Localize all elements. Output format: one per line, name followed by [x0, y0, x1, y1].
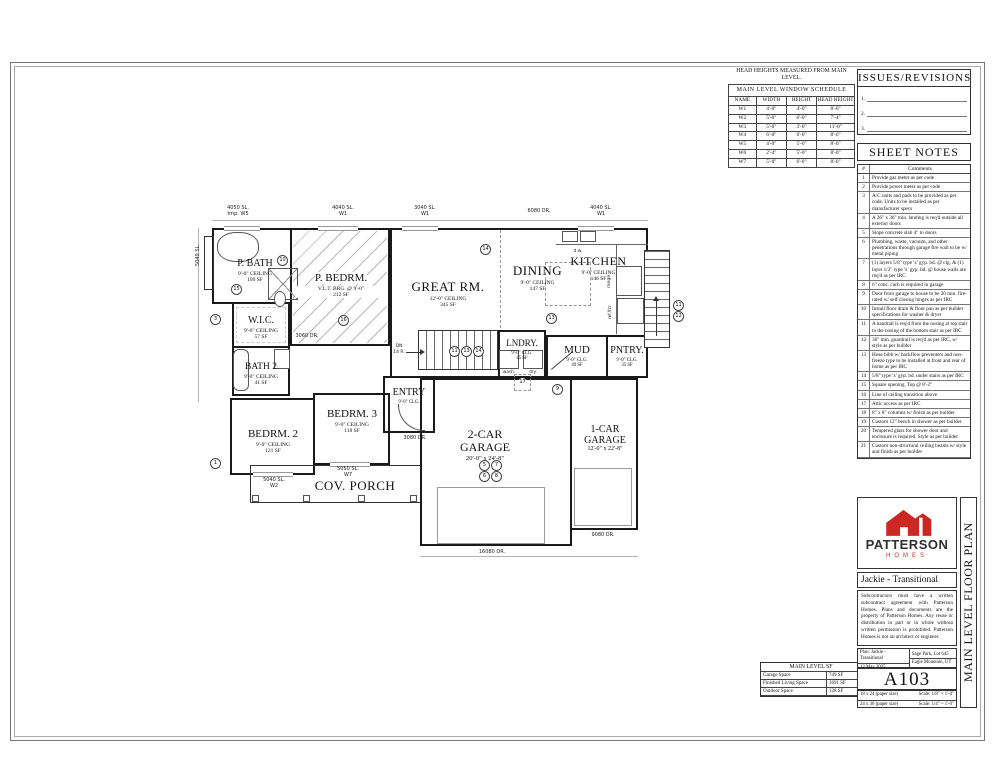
- sf-value: 128 SF: [827, 688, 861, 695]
- room-sf: 109 SF: [215, 277, 295, 283]
- plan-title: Jackie - Transitional: [858, 573, 956, 587]
- room-name: 1-CAR: [572, 424, 638, 435]
- wall-vanity-bump: [204, 236, 214, 290]
- cell-width: 5'-0": [756, 158, 786, 167]
- disclaimer-text: Subcontractors must have a written subco…: [858, 591, 956, 642]
- room-label-pntry: PNTRY. 9'-0" CLG. 35 SF: [604, 340, 650, 369]
- cell-name: W2: [729, 114, 757, 123]
- cell-head-height: 8'-0": [817, 105, 855, 114]
- note-number: 1: [858, 174, 870, 182]
- note-row: 15 Square opening. Top @ 8'-2": [858, 381, 970, 390]
- tag-size: 3060 DR.: [295, 333, 318, 339]
- kitchen-sink-icon: [580, 231, 596, 242]
- tag-id: tmp. W5: [227, 211, 248, 217]
- stair-dn-label: DN: [392, 344, 406, 349]
- sf-label: Garage Space: [761, 672, 827, 679]
- note-number: 15: [858, 381, 870, 389]
- note-number: 2: [858, 183, 870, 191]
- scale-box: 18 x 24 (paper size) Scale: 1/8" = 1'-0"…: [857, 690, 957, 708]
- dryer-label: dry.: [523, 370, 543, 375]
- plan-info-right: Sage Park, Lot 645 Eagle Mountain, UT: [910, 649, 956, 667]
- cell-height: 3'-0": [786, 123, 816, 132]
- note-text: 8" x 8" columns w/ finish as per builder: [870, 409, 970, 417]
- sheet-notes-table: # Comments 1 Provide gas meter as per co…: [857, 164, 971, 459]
- note-text: 6" conc. curb is required in garage: [870, 281, 970, 289]
- issue-number: 1.: [861, 96, 865, 102]
- door-tag: 3080 DR.: [400, 436, 430, 442]
- issues-row: 2.: [858, 102, 970, 117]
- note-number: 3: [858, 192, 870, 212]
- room-name: PNTRY.: [610, 345, 643, 356]
- note-ref: 13: [461, 346, 472, 357]
- note-number: 12: [858, 336, 870, 350]
- issues-title: ISSUES/REVISIONS: [858, 70, 970, 87]
- schedule-caption: HEAD HEIGHTS MEASURED FROM MAIN LEVEL.: [728, 68, 855, 82]
- brand-sub: HOMES: [886, 553, 928, 559]
- window-tag: 5040 SL.: [196, 238, 202, 272]
- note-text: Slope concrete slab 4" to doors: [870, 229, 970, 237]
- cell-width: 5'-0": [756, 123, 786, 132]
- room-name: P. BATH: [237, 258, 273, 269]
- stair-dn-count: 14 R.: [390, 350, 408, 355]
- note-text: Install floor drain & floor pan as per b…: [870, 305, 970, 319]
- plan-label: Plan: Jackie - Transitional: [858, 649, 909, 664]
- room-label-bath2: BATH 2 9'-0" CEILING 41 SF: [232, 356, 290, 386]
- col-height: HEIGHT: [786, 97, 816, 106]
- issue-line: [867, 116, 967, 117]
- sf-row: Finished Living Space 1691 SF: [761, 680, 861, 688]
- room-sf: 147 SF: [495, 286, 580, 292]
- window-schedule-table: MAIN LEVEL WINDOW SCHEDULE NAME WIDTH HE…: [728, 84, 855, 167]
- fridge-icon: [617, 298, 644, 324]
- sf-label: Finished Living Space: [761, 680, 827, 687]
- schedule-row: W7 5'-0" 6'-0" 8'-0": [729, 158, 855, 167]
- window-opening: [402, 226, 438, 231]
- room-name2: GARAGE: [430, 441, 540, 454]
- room-name2: GARAGE: [572, 435, 638, 446]
- room-name: GREAT RM.: [412, 279, 485, 294]
- drawing-sheet: P. BATH 9'-0" CEILING 109 SF P. BEDRM. V…: [0, 0, 994, 768]
- notes-col-comments: Comments: [870, 165, 970, 173]
- note-number: 4: [858, 214, 870, 228]
- room-sf: 212 SF: [295, 292, 387, 298]
- window-tag: 4040 SL. W1: [586, 206, 616, 218]
- sf-row: Garage Space 749 SF: [761, 672, 861, 680]
- sf-value: 749 SF: [827, 672, 861, 679]
- note-ref: 1: [210, 458, 221, 469]
- note-number: 13: [858, 351, 870, 371]
- room-sf: 41 SF: [232, 380, 290, 386]
- patterson-homes-logo-icon: [881, 507, 933, 537]
- note-ref: 14: [480, 244, 491, 255]
- col-head-height: HEAD HEIGHT: [817, 97, 855, 106]
- room-name: COV. PORCH: [315, 478, 396, 493]
- cell-width: 2'-4": [756, 149, 786, 158]
- dimension-line-bottom: [420, 556, 638, 557]
- counter-line: [556, 244, 648, 245]
- room-label-pbedrm: P. BEDRM. V.L.T. BRG. @ 9'-0" 212 SF: [295, 268, 387, 298]
- issue-number: 3.: [861, 126, 865, 132]
- schedule-row: W4 6'-0" 6'-0" 8'-0": [729, 132, 855, 141]
- note-text: Attic access as per IRC: [870, 400, 970, 408]
- cell-height: 5'-0": [786, 149, 816, 158]
- window-tag: 4050 SL. tmp. W5: [222, 206, 254, 218]
- room-label-bedrm3: BEDRM. 3 9'-0" CEILING 118 SF: [315, 404, 389, 434]
- note-number: 14: [858, 372, 870, 380]
- dn-arrow-icon: [420, 349, 425, 355]
- note-number: 6: [858, 238, 870, 258]
- paper-size-2: 24 x 36 (paper size): [858, 701, 917, 710]
- room-label-garage1: 1-CAR GARAGE 12'-0" x 22'-8": [572, 424, 638, 453]
- schedule-row: W1 4'-0" 4'-0" 8'-0": [729, 105, 855, 114]
- sf-table-title: MAIN LEVEL SF: [761, 663, 861, 672]
- note-row: 1 Provide gas meter as per code: [858, 174, 970, 183]
- cell-height: 6'-0": [786, 114, 816, 123]
- schedule-body: W1 4'-0" 4'-0" 8'-0" W2 5'-0" 6'-0" 7'-4…: [729, 105, 855, 167]
- cell-name: W6: [729, 149, 757, 158]
- note-number: 9: [858, 290, 870, 304]
- cell-height: 4'-0": [786, 105, 816, 114]
- room-name: BEDRM. 2: [248, 428, 298, 440]
- note-ref: 13: [546, 313, 557, 324]
- schedule-row: W5 4'-0" 5'-0" 8'-0": [729, 141, 855, 150]
- room-sf: 121 SF: [232, 448, 314, 454]
- dn-arrow-line: [406, 352, 420, 353]
- note-number: 20: [858, 427, 870, 441]
- issues-rows: 1. 2. 3.: [858, 87, 970, 132]
- porch-column: [252, 495, 259, 502]
- porch-column: [410, 495, 417, 502]
- fridge-label: ref./fzr.: [608, 300, 613, 324]
- note-ref: 8: [491, 471, 502, 482]
- note-row: 2 Provide power meter as per code: [858, 183, 970, 192]
- schedule-header-row: NAME WIDTH HEIGHT HEAD HEIGHT: [729, 97, 855, 106]
- note-text: (1) layers 5/8" type 'x' gyp. bd. @ clg.…: [870, 259, 970, 279]
- room-sf: 118 SF: [315, 428, 389, 434]
- room-name: MUD: [564, 344, 590, 356]
- schedule-row: W2 5'-0" 6'-0" 7'-4": [729, 114, 855, 123]
- note-number: 18: [858, 409, 870, 417]
- washer-label: wash.: [499, 370, 519, 375]
- room-name: BATH 2: [245, 362, 277, 372]
- note-number: 7: [858, 259, 870, 279]
- note-number: 17: [858, 400, 870, 408]
- cell-head-height: 7'-4": [817, 114, 855, 123]
- note-ref: 15: [231, 284, 242, 295]
- room-name: 2-CAR: [430, 428, 540, 441]
- note-text: A handrail is req'd from the nosing at t…: [870, 320, 970, 334]
- issue-line: [867, 131, 967, 132]
- note-ref: 12: [673, 311, 684, 322]
- note-ref: 11: [449, 346, 460, 357]
- note-row: 11 A handrail is req'd from the nosing a…: [858, 320, 970, 335]
- room-label-entry: ENTRY 9'-0" CLG.: [384, 382, 434, 405]
- cell-head-height: 11'-0": [817, 123, 855, 132]
- cell-name: W7: [729, 158, 757, 167]
- issues-revisions-box: ISSUES/REVISIONS 1. 2. 3.: [857, 69, 971, 135]
- note-row: 20 Tempered glass for shower door and en…: [858, 427, 970, 442]
- sf-table-body: Garage Space 749 SF Finished Living Spac…: [761, 672, 861, 696]
- room-label-garage2: 2-CAR GARAGE 20'-0" x 24'-8": [430, 428, 540, 462]
- note-text: 5/8" type 'x' gyp. bd. under stairs as p…: [870, 372, 970, 380]
- note-number: 5: [858, 229, 870, 237]
- sheet-number-box: A103: [857, 668, 957, 690]
- note-text: Door from garage to house to be 20 min. …: [870, 290, 970, 304]
- room-label-bedrm2: BEDRM. 2 9'-0" CEILING 121 SF: [232, 424, 314, 454]
- window-tag: 3040 SL. W1: [410, 206, 440, 218]
- tag-id: W7: [344, 472, 352, 478]
- brand-name: PATTERSON: [866, 537, 949, 552]
- note-text: Provide power meter as per code: [870, 183, 970, 191]
- paper-size-1: 18 x 24 (paper size): [858, 691, 917, 700]
- plan-title-box: Jackie - Transitional: [857, 572, 957, 588]
- note-row: 7 (1) layers 5/8" type 'x' gyp. bd. @ cl…: [858, 259, 970, 280]
- window-schedule: HEAD HEIGHTS MEASURED FROM MAIN LEVEL. M…: [728, 68, 855, 168]
- tag-id: W1: [339, 211, 347, 217]
- range-label: range: [607, 270, 612, 292]
- garage-door-tag: 16080 DR.: [474, 550, 510, 556]
- disclaimer-box: Subcontractors must have a written subco…: [857, 590, 957, 646]
- room-label-kitchen: KITCHEN 9'-0" CEILING 146 SF: [556, 252, 641, 282]
- room-sf: 146 SF: [556, 276, 641, 282]
- room-dim: 12'-0" x 22'-8": [572, 446, 638, 453]
- note-ref: 17: [518, 378, 527, 387]
- note-ref: 10: [277, 255, 288, 266]
- cell-name: W5: [729, 141, 757, 150]
- sheet-notes-title-box: SHEET NOTES: [857, 143, 971, 161]
- window-opening: [224, 226, 260, 231]
- note-ref: 6: [479, 471, 490, 482]
- room-name: LNDRY.: [506, 338, 538, 348]
- notes-body: 1 Provide gas meter as per code 2 Provid…: [858, 174, 970, 458]
- plan-info-grid: Plan: Jackie - Transitional 12 May 2025 …: [857, 648, 957, 668]
- scale-row-2: 24 x 36 (paper size) Scale: 1/4" = 1'-0": [858, 701, 956, 710]
- room-sf: 35 SF: [604, 363, 650, 368]
- note-row: 17 Attic access as per IRC: [858, 400, 970, 409]
- garage2-door-outline: [437, 487, 545, 544]
- scale-row-1: 18 x 24 (paper size) Scale: 1/8" = 1'-0": [858, 691, 956, 701]
- schedule-row: W3 5'-0" 3'-0" 11'-0": [729, 123, 855, 132]
- note-row: 19 Custom 12" bench in shower as per bui…: [858, 418, 970, 427]
- col-width: WIDTH: [756, 97, 786, 106]
- plan-info-left: Plan: Jackie - Transitional 12 May 2025: [858, 649, 910, 667]
- note-number: 11: [858, 320, 870, 334]
- tag-size: 6080 DR.: [527, 208, 550, 214]
- sf-value: 1691 SF: [827, 680, 861, 687]
- room-label-lndry: LNDRY. 9'-0" CLG. 45 SF: [496, 333, 548, 362]
- garage1-door-outline: [574, 468, 632, 526]
- cell-width: 6'-0": [756, 132, 786, 141]
- issues-row: 3.: [858, 117, 970, 132]
- note-number: 8: [858, 281, 870, 289]
- cell-head-height: 8'-0": [817, 132, 855, 141]
- porch-column: [303, 495, 310, 502]
- scale-1: Scale: 1/8" = 1'-0": [917, 691, 956, 700]
- note-text: Custom 12" bench in shower as per builde…: [870, 418, 970, 426]
- note-row: 13 Hose bibb w/ backflow preventers and …: [858, 351, 970, 372]
- note-row: 12 36" min. guardrail is req'd as per IR…: [858, 336, 970, 351]
- sf-table: MAIN LEVEL SF Garage Space 749 SF Finish…: [760, 662, 862, 697]
- note-row: 8 6" conc. curb is required in garage: [858, 281, 970, 290]
- sheet-number: A103: [858, 669, 956, 690]
- porch-column: [358, 495, 365, 502]
- note-ref: 9: [552, 384, 563, 395]
- cell-head-height: 8'-0": [817, 158, 855, 167]
- tag-size: 5040 SL.: [195, 244, 201, 266]
- note-row: 9 Door from garage to house to be 20 min…: [858, 290, 970, 305]
- note-ref: 16: [338, 315, 349, 326]
- up-arrow-line: [656, 300, 657, 336]
- sf-row: Outdoor Space 128 SF: [761, 688, 861, 696]
- schedule-row: W6 2'-4" 5'-0" 8'-0": [729, 149, 855, 158]
- room-label-wic: W.I.C. 9'-0" CEILING 57 SF: [232, 310, 290, 340]
- note-text: A/C units and pads to be provided as per…: [870, 192, 970, 212]
- note-ref: 5: [479, 460, 490, 471]
- window-tag: 5050 SL. W7: [332, 467, 364, 479]
- notes-header: # Comments: [858, 165, 970, 174]
- sheet-notes-title: SHEET NOTES: [858, 144, 970, 160]
- room-name: ENTRY: [393, 387, 426, 398]
- issue-number: 2.: [861, 111, 865, 117]
- room-name: BEDRM. 3: [327, 408, 377, 420]
- cell-name: W4: [729, 132, 757, 141]
- note-row: 21 Custom non-structural ceiling beams w…: [858, 442, 970, 457]
- note-ref: 11: [673, 300, 684, 311]
- tag-size: 3080 DR.: [403, 435, 426, 441]
- tag-id: W1: [597, 211, 605, 217]
- cell-name: W3: [729, 123, 757, 132]
- room-label-greatrm: GREAT RM. 12'-0" CEILING 345 SF: [398, 278, 498, 308]
- schedule-title: MAIN LEVEL WINDOW SCHEDULE: [729, 85, 855, 97]
- cell-width: 4'-0": [756, 141, 786, 150]
- cell-name: W1: [729, 105, 757, 114]
- note-number: 16: [858, 391, 870, 399]
- note-ref: 14: [473, 346, 484, 357]
- room-ceiling: 9'-0" CLG.: [384, 400, 434, 405]
- note-ref: 7: [491, 460, 502, 471]
- cell-height: 6'-0": [786, 132, 816, 141]
- note-text: Line of ceiling transition above: [870, 391, 970, 399]
- note-text: Tempered glass for shower door and enclo…: [870, 427, 970, 441]
- dimension-line-top: [212, 220, 648, 221]
- room-name: KITCHEN: [570, 254, 626, 268]
- room-sf: 345 SF: [398, 302, 498, 308]
- note-text: 36" min. guardrail is req'd as per IRC, …: [870, 336, 970, 350]
- room-sf: 49 SF: [548, 363, 606, 368]
- note-number: 19: [858, 418, 870, 426]
- issue-line: [867, 101, 967, 102]
- room-name: DINING: [513, 263, 562, 278]
- note-text: Plumbing, waste, vacuum, and other penet…: [870, 238, 970, 258]
- note-number: 21: [858, 442, 870, 456]
- tag-id: W2: [270, 483, 278, 489]
- logo-box: PATTERSON HOMES: [857, 497, 957, 569]
- issues-row: 1.: [858, 87, 970, 102]
- plan-location: Sage Park, Lot 645: [910, 649, 956, 659]
- room-sf: 45 SF: [496, 356, 548, 361]
- room-name: W.I.C.: [248, 315, 274, 326]
- note-text: Hose bibb w/ backflow preventers and non…: [870, 351, 970, 371]
- cell-height: 6'-0": [786, 158, 816, 167]
- tag-size: 16080 DR.: [479, 549, 505, 555]
- plan-city: Eagle Mountain, UT: [910, 659, 956, 667]
- tag-id: W1: [421, 211, 429, 217]
- dw-label: d.w.: [568, 249, 588, 254]
- note-number: 10: [858, 305, 870, 319]
- note-row: 4 A 36" x 36" min. landing is req'd outs…: [858, 214, 970, 229]
- col-name: NAME: [729, 97, 757, 106]
- door-tag: 6080 DR.: [524, 209, 554, 215]
- sheet-title-vertical: MAIN LEVEL FLOOR PLAN: [960, 497, 977, 708]
- cell-width: 5'-0": [756, 114, 786, 123]
- cell-height: 5'-0": [786, 141, 816, 150]
- up-arrow-icon: [653, 296, 659, 301]
- note-text: Square opening. Top @ 8'-2": [870, 381, 970, 389]
- window-opening: [318, 226, 358, 231]
- note-row: 16 Line of ceiling transition above: [858, 391, 970, 400]
- tag-size: 9080 DR.: [591, 532, 614, 538]
- note-row: 14 5/8" type 'x' gyp. bd. under stairs a…: [858, 372, 970, 381]
- note-row: 5 Slope concrete slab 4" to doors: [858, 229, 970, 238]
- room-label-porch: COV. PORCH: [300, 477, 410, 495]
- sf-label: Outdoor Space: [761, 688, 827, 695]
- window-tag: 4040 SL. W1: [328, 206, 358, 218]
- room-label-mud: MUD 9'-0" CLG. 49 SF: [548, 340, 606, 369]
- note-row: 6 Plumbing, waste, vacuum, and other pen…: [858, 238, 970, 259]
- note-text: Custom non-structural ceiling beams w/ s…: [870, 442, 970, 456]
- kitchen-sink-icon: [562, 231, 578, 242]
- note-row: 10 Install floor drain & floor pan as pe…: [858, 305, 970, 320]
- notes-col-num: #: [858, 165, 870, 173]
- scale-2: Scale: 1/4" = 1'-0": [917, 701, 956, 710]
- door-tag: 3060 DR.: [292, 334, 322, 340]
- note-text: Provide gas meter as per code: [870, 174, 970, 182]
- note-row: 3 A/C units and pads to be provided as p…: [858, 192, 970, 213]
- window-tag: 5040 SL. W2: [258, 478, 290, 490]
- cell-head-height: 8'-0": [817, 141, 855, 150]
- note-ref: 3: [210, 314, 221, 325]
- garage-door-tag: 9080 DR.: [586, 533, 620, 539]
- room-sf: 57 SF: [232, 334, 290, 340]
- note-text: A 36" x 36" min. landing is req'd outsid…: [870, 214, 970, 228]
- room-name: P. BEDRM.: [315, 272, 367, 284]
- cell-head-height: 8'-0": [817, 149, 855, 158]
- cell-width: 4'-0": [756, 105, 786, 114]
- note-row: 18 8" x 8" columns w/ finish as per buil…: [858, 409, 970, 418]
- toilet-icon: [274, 291, 286, 307]
